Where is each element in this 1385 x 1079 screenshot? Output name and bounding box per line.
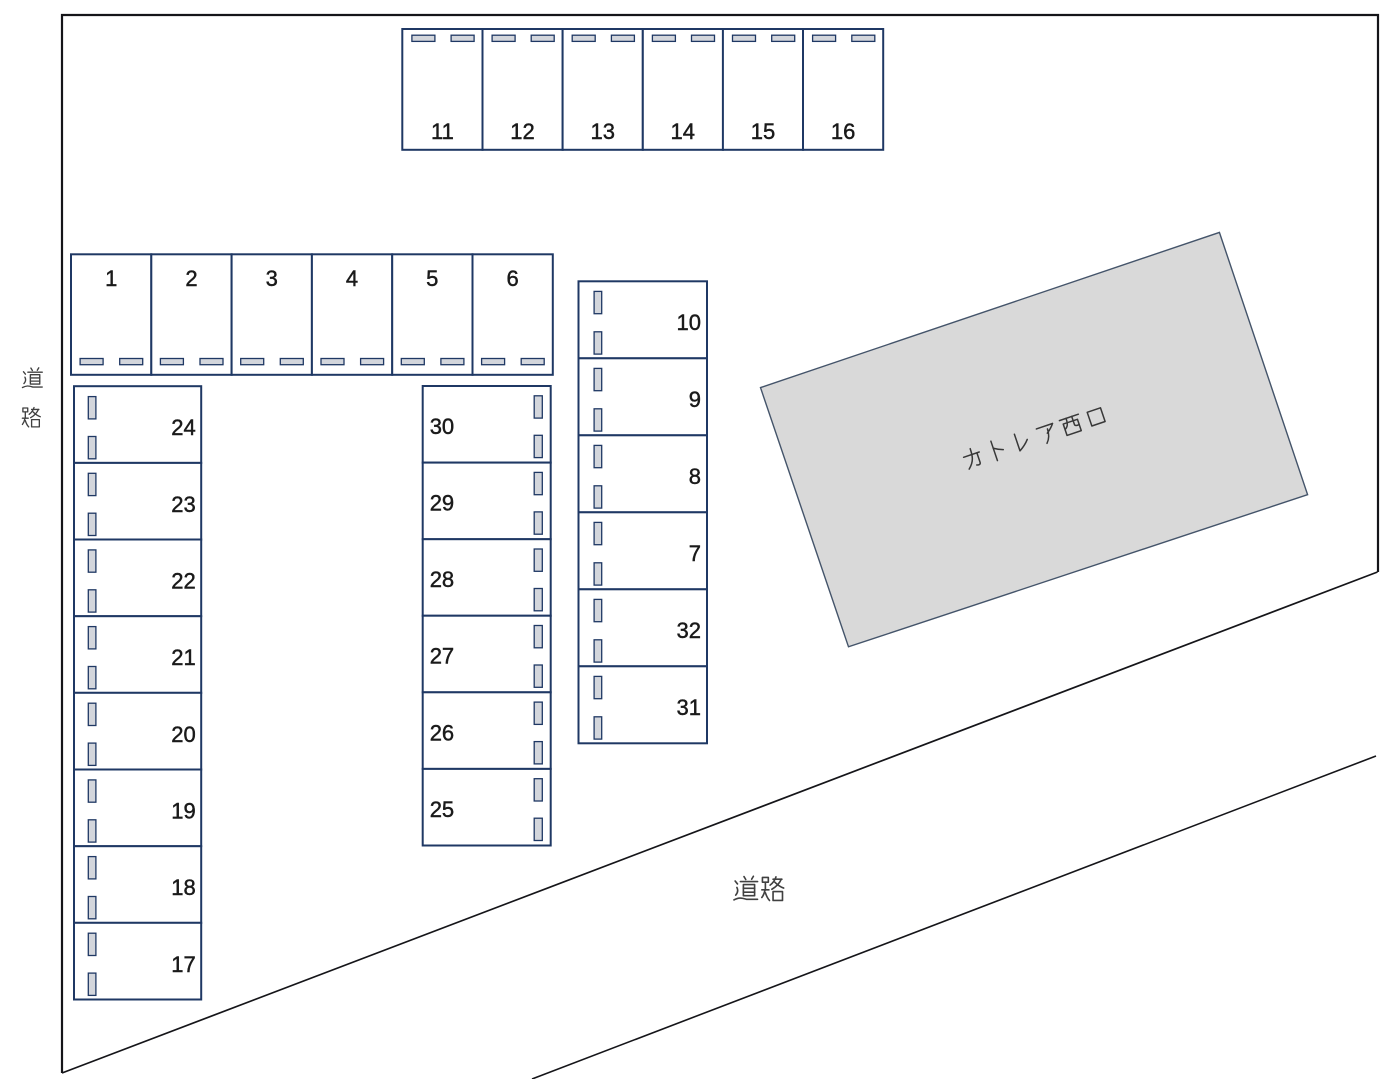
svg-text:8: 8 xyxy=(689,464,701,489)
svg-text:28: 28 xyxy=(430,567,454,592)
svg-text:9: 9 xyxy=(689,387,701,412)
svg-text:7: 7 xyxy=(689,541,701,566)
svg-text:21: 21 xyxy=(171,645,195,670)
svg-text:15: 15 xyxy=(751,119,775,144)
svg-text:1: 1 xyxy=(105,266,117,291)
svg-text:25: 25 xyxy=(430,797,454,822)
svg-text:27: 27 xyxy=(430,644,454,669)
svg-text:20: 20 xyxy=(171,722,195,747)
svg-text:4: 4 xyxy=(346,266,358,291)
svg-text:5: 5 xyxy=(426,266,438,291)
svg-text:6: 6 xyxy=(506,266,518,291)
svg-text:17: 17 xyxy=(171,952,195,977)
svg-text:10: 10 xyxy=(677,310,701,335)
svg-text:22: 22 xyxy=(171,569,195,594)
svg-text:24: 24 xyxy=(171,415,195,440)
svg-text:12: 12 xyxy=(510,119,534,144)
svg-text:3: 3 xyxy=(266,266,278,291)
svg-text:18: 18 xyxy=(171,875,195,900)
svg-text:29: 29 xyxy=(430,491,454,516)
svg-text:16: 16 xyxy=(831,119,855,144)
svg-text:14: 14 xyxy=(671,119,695,144)
svg-text:19: 19 xyxy=(171,799,195,824)
svg-text:23: 23 xyxy=(171,492,195,517)
svg-text:2: 2 xyxy=(185,266,197,291)
svg-text:26: 26 xyxy=(430,720,454,745)
svg-text:32: 32 xyxy=(677,618,701,643)
svg-text:13: 13 xyxy=(590,119,614,144)
svg-text:11: 11 xyxy=(431,119,454,144)
svg-text:30: 30 xyxy=(430,414,454,439)
svg-text:31: 31 xyxy=(677,695,701,720)
